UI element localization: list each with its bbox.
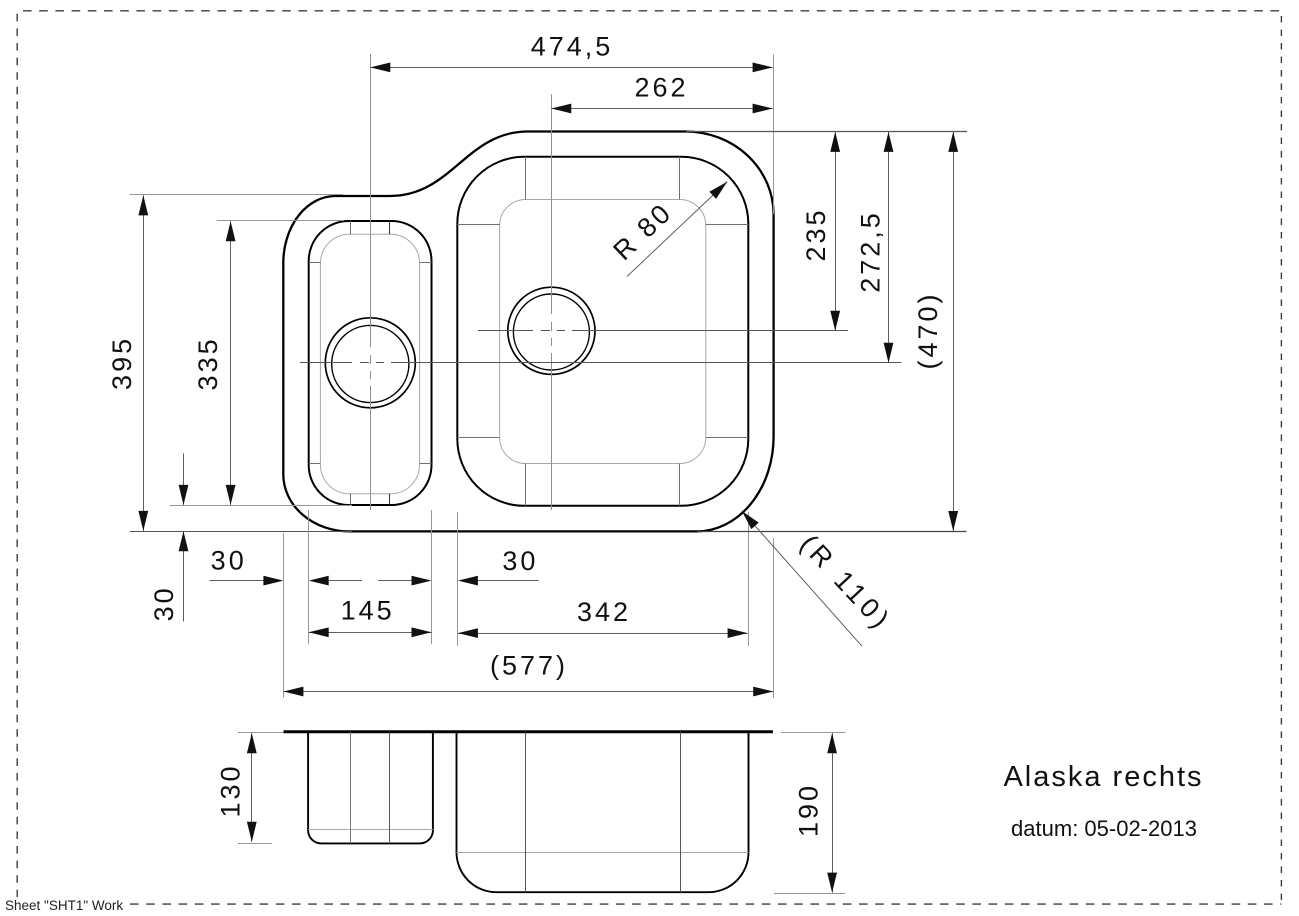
svg-text:(470): (470) (913, 291, 943, 369)
svg-text:30: 30 (149, 585, 179, 621)
svg-text:235: 235 (801, 207, 831, 261)
svg-text:Sheet "SHT1" Work: Sheet "SHT1" Work (5, 898, 123, 913)
svg-text:30: 30 (502, 546, 538, 576)
svg-text:342: 342 (577, 597, 631, 627)
svg-text:Alaska rechts: Alaska rechts (1003, 761, 1203, 793)
svg-text:474,5: 474,5 (531, 32, 614, 62)
svg-text:R 80: R 80 (607, 197, 678, 266)
svg-text:130: 130 (216, 763, 246, 817)
svg-text:145: 145 (341, 596, 395, 626)
svg-text:272,5: 272,5 (855, 210, 885, 293)
svg-text:(R 110): (R 110) (794, 529, 897, 637)
svg-text:datum: 05-02-2013: datum: 05-02-2013 (1011, 816, 1197, 841)
svg-text:335: 335 (193, 336, 223, 390)
svg-text:30: 30 (211, 546, 247, 576)
svg-text:395: 395 (107, 336, 137, 390)
svg-text:(577): (577) (490, 651, 568, 681)
svg-text:262: 262 (634, 73, 688, 103)
svg-text:190: 190 (794, 783, 824, 837)
